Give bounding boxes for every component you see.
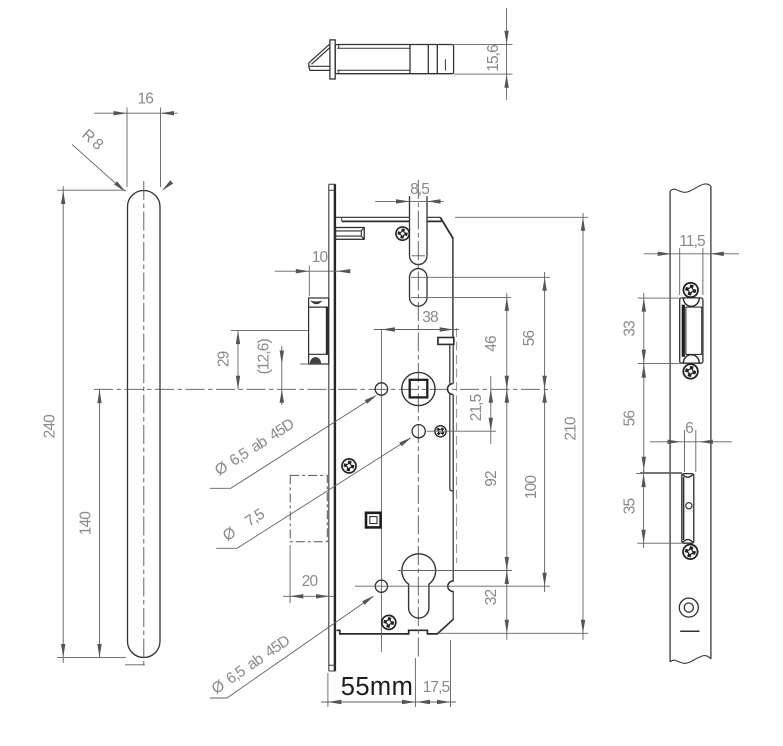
- svg-text:(12,6): (12,6): [255, 339, 272, 375]
- svg-text:32: 32: [483, 590, 500, 606]
- svg-text:21,5: 21,5: [468, 394, 485, 421]
- svg-text:15,6: 15,6: [485, 45, 502, 72]
- svg-text:46: 46: [483, 336, 500, 352]
- svg-text:240: 240: [42, 414, 59, 438]
- svg-text:R 8: R 8: [78, 126, 106, 153]
- svg-text:56: 56: [621, 411, 638, 427]
- svg-text:140: 140: [78, 511, 95, 535]
- svg-text:92: 92: [483, 471, 500, 487]
- svg-text:55mm: 55mm: [341, 673, 413, 701]
- svg-text:33: 33: [622, 321, 639, 337]
- svg-text:35: 35: [621, 499, 638, 515]
- svg-text:20: 20: [302, 573, 319, 590]
- svg-text:6: 6: [685, 420, 693, 437]
- svg-text:10: 10: [312, 249, 329, 266]
- svg-text:38: 38: [422, 309, 438, 326]
- svg-text:56: 56: [521, 331, 538, 347]
- svg-text:Ø 7,5: Ø 7,5: [220, 506, 268, 545]
- svg-text:Ø 6,5 ab 45D: Ø 6,5 ab 45D: [209, 632, 294, 698]
- svg-text:100: 100: [523, 475, 540, 499]
- svg-text:17,5: 17,5: [423, 679, 450, 696]
- svg-text:11,5: 11,5: [679, 233, 705, 250]
- svg-text:16: 16: [137, 91, 153, 108]
- svg-text:8,5: 8,5: [410, 181, 429, 198]
- svg-text:Ø 6,5 ab 45D: Ø 6,5 ab 45D: [212, 415, 298, 479]
- svg-text:210: 210: [562, 416, 579, 440]
- svg-text:29: 29: [216, 351, 233, 367]
